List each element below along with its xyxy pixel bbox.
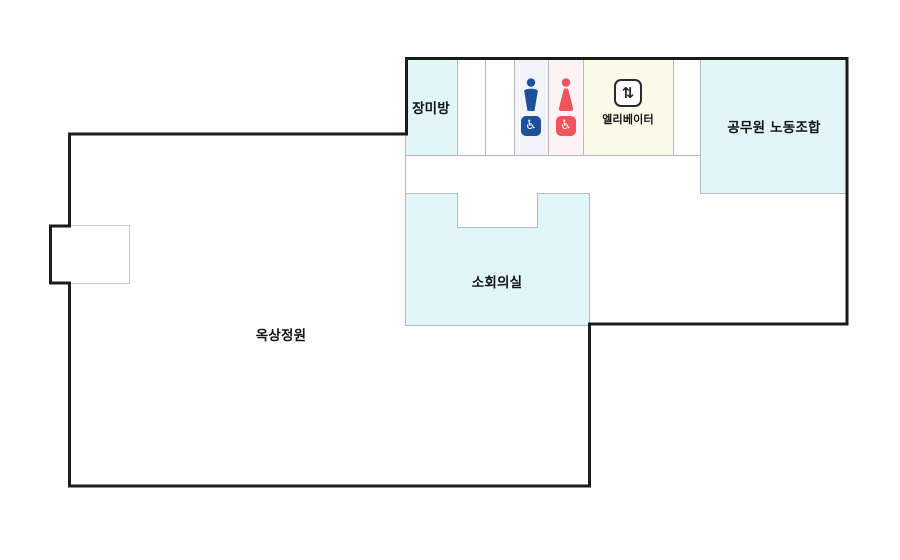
room-meeting-label: 소회의실 xyxy=(472,271,522,291)
empty-room-1 xyxy=(458,58,486,156)
balcony-structure xyxy=(51,226,130,284)
elevator-label: 엘리베이터 xyxy=(602,111,654,127)
elevator-arrows-glyph: ⇅ xyxy=(622,84,635,102)
elevator-updown-icon: ⇅ xyxy=(614,79,642,107)
area-garden-label: 옥상정원 xyxy=(256,324,306,344)
female-restroom-icon xyxy=(557,78,575,112)
room-rose-label: 장미방 xyxy=(412,97,450,117)
male-restroom-icon xyxy=(522,78,540,112)
female-wheelchair-accessible-icon: ♿ xyxy=(556,116,576,136)
male-wheelchair-accessible-icon: ♿ xyxy=(521,116,541,136)
room-meeting xyxy=(406,194,590,326)
empty-room-2 xyxy=(486,58,515,156)
empty-room-3 xyxy=(674,58,701,156)
wheelchair-glyph: ♿ xyxy=(560,116,572,136)
floor-plan-drawing xyxy=(0,0,900,560)
floor-plan-canvas: 장미방 공무원 노동조합 소회의실 옥상정원 ⇅ 엘리베이터 ♿ ♿ xyxy=(0,0,900,560)
room-union-label: 공무원 노동조합 xyxy=(727,116,820,136)
wheelchair-glyph: ♿ xyxy=(525,116,537,136)
